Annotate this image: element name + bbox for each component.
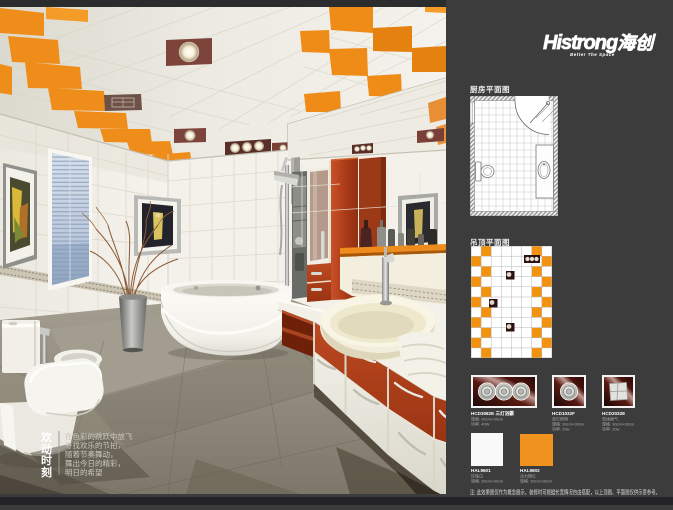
svg-text:随着节奏舞动，: 随着节奏舞动， bbox=[65, 449, 118, 459]
svg-text:HCD2032E: HCD2032E bbox=[602, 411, 625, 416]
svg-text:刻: 刻 bbox=[41, 465, 52, 479]
svg-text:时: 时 bbox=[41, 453, 52, 467]
svg-text:欢: 欢 bbox=[40, 430, 53, 444]
svg-text:明日的希望: 明日的希望 bbox=[65, 467, 103, 477]
svg-text:动: 动 bbox=[41, 442, 52, 456]
svg-text:HCD1032F: HCD1032F bbox=[552, 411, 575, 416]
svg-text:HAL9601: HAL9601 bbox=[471, 468, 491, 473]
svg-text:寻找欢乐的节拍，: 寻找欢乐的节拍， bbox=[65, 440, 125, 450]
svg-text:HAL9602: HAL9602 bbox=[520, 468, 540, 473]
svg-text:注: 此效果图仅作为概念展示，装修时可根据长宽情况自由搭配，: 注: 此效果图仅作为概念展示，装修时可根据长宽情况自由搭配，以上顶图、平面图仅供… bbox=[470, 489, 660, 497]
svg-text:规格: 30cm×30cm: 规格: 30cm×30cm bbox=[471, 478, 504, 484]
svg-text:规格: 30cm×30cm: 规格: 30cm×30cm bbox=[520, 478, 553, 484]
svg-text:功率: 40W: 功率: 40W bbox=[471, 421, 490, 427]
svg-text:功率: 20w: 功率: 20w bbox=[602, 426, 620, 432]
svg-text:功率: 20w: 功率: 20w bbox=[552, 426, 570, 432]
svg-text:舞出今日的精彩，: 舞出今日的精彩， bbox=[65, 458, 125, 468]
svg-text:在色彩的跳跃中放飞: 在色彩的跳跃中放飞 bbox=[65, 431, 133, 441]
